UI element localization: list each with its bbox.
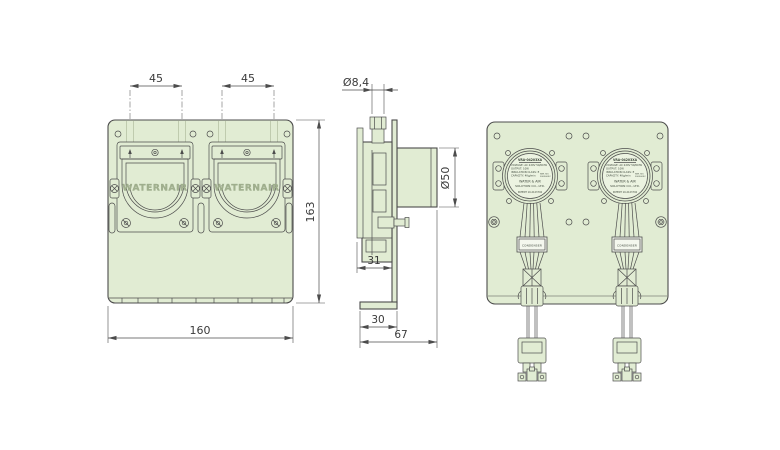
dim-panel-height: 163 [296, 120, 325, 303]
plate-side [392, 120, 397, 303]
dim-port-spacing-left: 45 [130, 72, 182, 88]
dim-label: Ø8,4 [343, 76, 369, 89]
pump-unit-2 [202, 142, 292, 232]
nozzle-collar [370, 117, 386, 129]
dim-label: 30 [371, 314, 384, 326]
dim-port-spacing-right: 45 [222, 72, 274, 88]
pump-flange-side [357, 128, 363, 238]
dim-label: 163 [304, 202, 317, 223]
pump-unit-1 [110, 142, 200, 232]
nozzle-neck [372, 128, 384, 143]
side-view: Ø8,4 Ø50 31 30 [342, 76, 459, 348]
dim-nozzle-diameter: Ø8,4 [342, 76, 398, 114]
front-view: 45 45 163 160 [108, 72, 325, 343]
dim-panel-width: 160 [108, 306, 293, 343]
drawing-canvas: WATERNAIR [0, 0, 780, 450]
dim-label: 45 [149, 72, 163, 85]
dim-motor-diameter: Ø50 [439, 148, 459, 207]
dim-label: 45 [241, 72, 255, 85]
dim-label: 67 [394, 329, 407, 341]
dim-label: 31 [367, 255, 380, 267]
pump-body-side [362, 142, 392, 262]
dim-label: 160 [190, 324, 211, 337]
foot-side [360, 302, 397, 309]
technical-drawing: WATERNAIR [0, 0, 780, 450]
dim-label: Ø50 [439, 167, 452, 190]
rear-mounting-panel [487, 122, 668, 304]
rear-view [487, 122, 668, 381]
stud [394, 219, 406, 226]
stud-cap [405, 218, 409, 228]
lower-block [378, 217, 394, 228]
